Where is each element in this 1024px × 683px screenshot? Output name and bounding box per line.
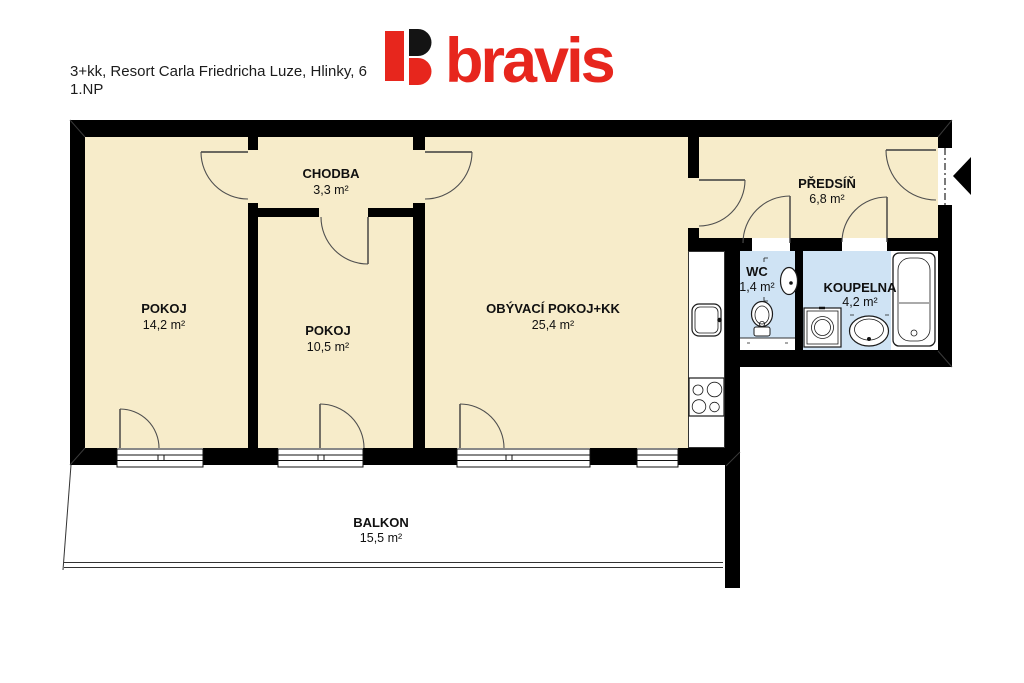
room-label-wc: WC (746, 264, 768, 279)
room-label-obyvaci: OBÝVACÍ POKOJ+KK (486, 301, 620, 316)
room-area-pokoj2: 10,5 m² (307, 340, 349, 354)
window (457, 449, 590, 467)
room-area-predsin: 6,8 m² (809, 192, 844, 206)
room-label-pokoj1: POKOJ (141, 301, 187, 316)
entrance-arrow-icon (953, 157, 971, 195)
stove (689, 378, 724, 416)
toilet (752, 302, 773, 337)
bathtub (893, 253, 935, 346)
room-area-balkon: 15,5 m² (360, 531, 402, 545)
room-label-pokoj2: POKOJ (305, 323, 351, 338)
window (278, 449, 363, 467)
kitchen-counter (689, 252, 725, 448)
floorplan-page: { "header": { "title_line1": "3+kk, Reso… (0, 0, 1024, 683)
wc-threshold (740, 338, 795, 350)
room-area-chodba: 3,3 m² (313, 183, 348, 197)
room-area-obyvaci: 25,4 m² (532, 318, 574, 332)
window (637, 449, 678, 467)
kitchen-sink (692, 304, 722, 336)
room-area-koupelna: 4,2 m² (842, 295, 877, 309)
washing-machine (804, 308, 841, 347)
room-area-wc: 1,4 m² (739, 280, 774, 294)
room-area-pokoj1: 14,2 m² (143, 318, 185, 332)
room-label-predsin: PŘEDSÍŇ (798, 176, 856, 191)
room-label-chodba: CHODBA (302, 166, 360, 181)
room-label-koupelna: KOUPELNA (824, 280, 898, 295)
floor-plan: POKOJ 14,2 m² CHODBA 3,3 m² POKOJ 10,5 m… (0, 0, 1024, 683)
floor-left-wing (85, 137, 725, 448)
room-label-balkon: BALKON (353, 515, 409, 530)
window (117, 449, 203, 467)
